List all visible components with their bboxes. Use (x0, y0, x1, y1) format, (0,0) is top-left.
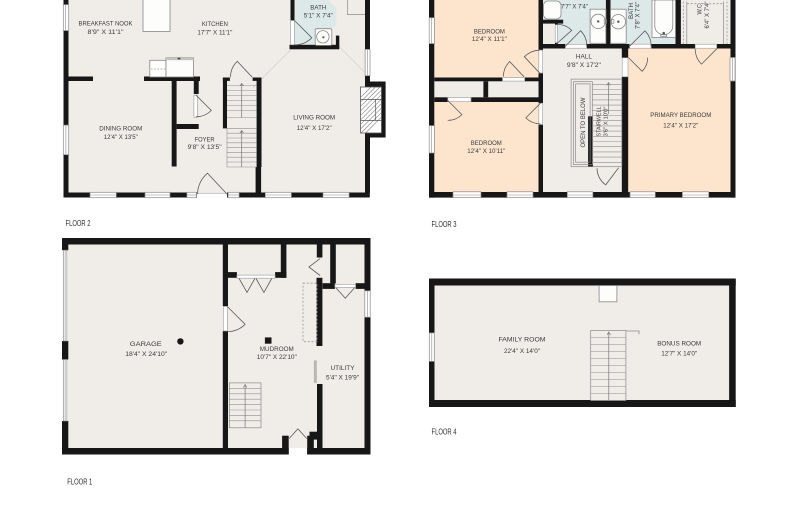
svg-text:9'8" X 13'5": 9'8" X 13'5" (188, 144, 223, 151)
svg-text:FLOOR 3: FLOOR 3 (432, 219, 457, 229)
svg-text:BEDROOM: BEDROOM (471, 140, 502, 147)
svg-text:FAMILY ROOM: FAMILY ROOM (499, 337, 546, 344)
svg-text:12'4" X 17'2": 12'4" X 17'2" (297, 125, 333, 132)
svg-text:7'7" X 7'4": 7'7" X 7'4" (561, 3, 589, 10)
svg-text:7'8" X 7'4": 7'8" X 7'4" (635, 1, 642, 29)
svg-text:12'4" X 17'2": 12'4" X 17'2" (663, 123, 699, 130)
svg-text:KITCHEN: KITCHEN (202, 21, 228, 28)
svg-text:FLOOR 2: FLOOR 2 (66, 218, 91, 228)
svg-text:PRIMARY BEDROOM: PRIMARY BEDROOM (650, 112, 711, 119)
svg-text:HALL: HALL (576, 53, 592, 60)
svg-text:12'7" X 14'0": 12'7" X 14'0" (661, 350, 698, 357)
svg-text:FOYER: FOYER (195, 136, 215, 143)
svg-text:12'4" X 11'1": 12'4" X 11'1" (472, 36, 508, 43)
svg-text:UTILITY: UTILITY (331, 365, 355, 372)
svg-text:FLOOR 1: FLOOR 1 (67, 477, 92, 487)
svg-text:GARAGE: GARAGE (130, 341, 163, 348)
svg-text:MUDROOM: MUDROOM (260, 346, 294, 353)
svg-text:BONUS ROOM: BONUS ROOM (657, 341, 701, 348)
svg-text:5'1" X 7'4": 5'1" X 7'4" (304, 12, 334, 19)
svg-text:17'7" X 11'1": 17'7" X 11'1" (197, 30, 233, 37)
svg-text:OPEN TO BELOW: OPEN TO BELOW (580, 97, 587, 147)
svg-text:6'4" X 7'4": 6'4" X 7'4" (704, 1, 711, 29)
svg-text:STAIRWELL: STAIRWELL (597, 106, 603, 137)
svg-text:FLOOR 4: FLOOR 4 (432, 427, 457, 437)
svg-text:LIVING ROOM: LIVING ROOM (293, 114, 335, 121)
svg-text:9'8" X 17'2": 9'8" X 17'2" (567, 62, 602, 69)
svg-text:W.C.: W.C. (697, 2, 704, 14)
svg-text:8'9" X 11'1": 8'9" X 11'1" (88, 29, 125, 36)
svg-text:5'4" X 19'9": 5'4" X 19'9" (326, 375, 360, 382)
svg-text:18'4" X 24'10": 18'4" X 24'10" (125, 351, 168, 358)
svg-text:12'4" X 13'5": 12'4" X 13'5" (104, 134, 139, 141)
svg-text:22'4" X 14'0": 22'4" X 14'0" (504, 348, 541, 355)
svg-text:BATH: BATH (310, 5, 326, 12)
svg-text:DINING ROOM: DINING ROOM (99, 126, 142, 133)
svg-text:12'4" X 10'11": 12'4" X 10'11" (467, 148, 506, 155)
svg-text:3'6" X 10'0": 3'6" X 10'0" (604, 107, 610, 137)
svg-text:BREAKFAST NOOK: BREAKFAST NOOK (79, 20, 133, 27)
svg-text:BEDROOM: BEDROOM (474, 29, 505, 36)
svg-text:10'7" X 22'10": 10'7" X 22'10" (257, 354, 298, 361)
